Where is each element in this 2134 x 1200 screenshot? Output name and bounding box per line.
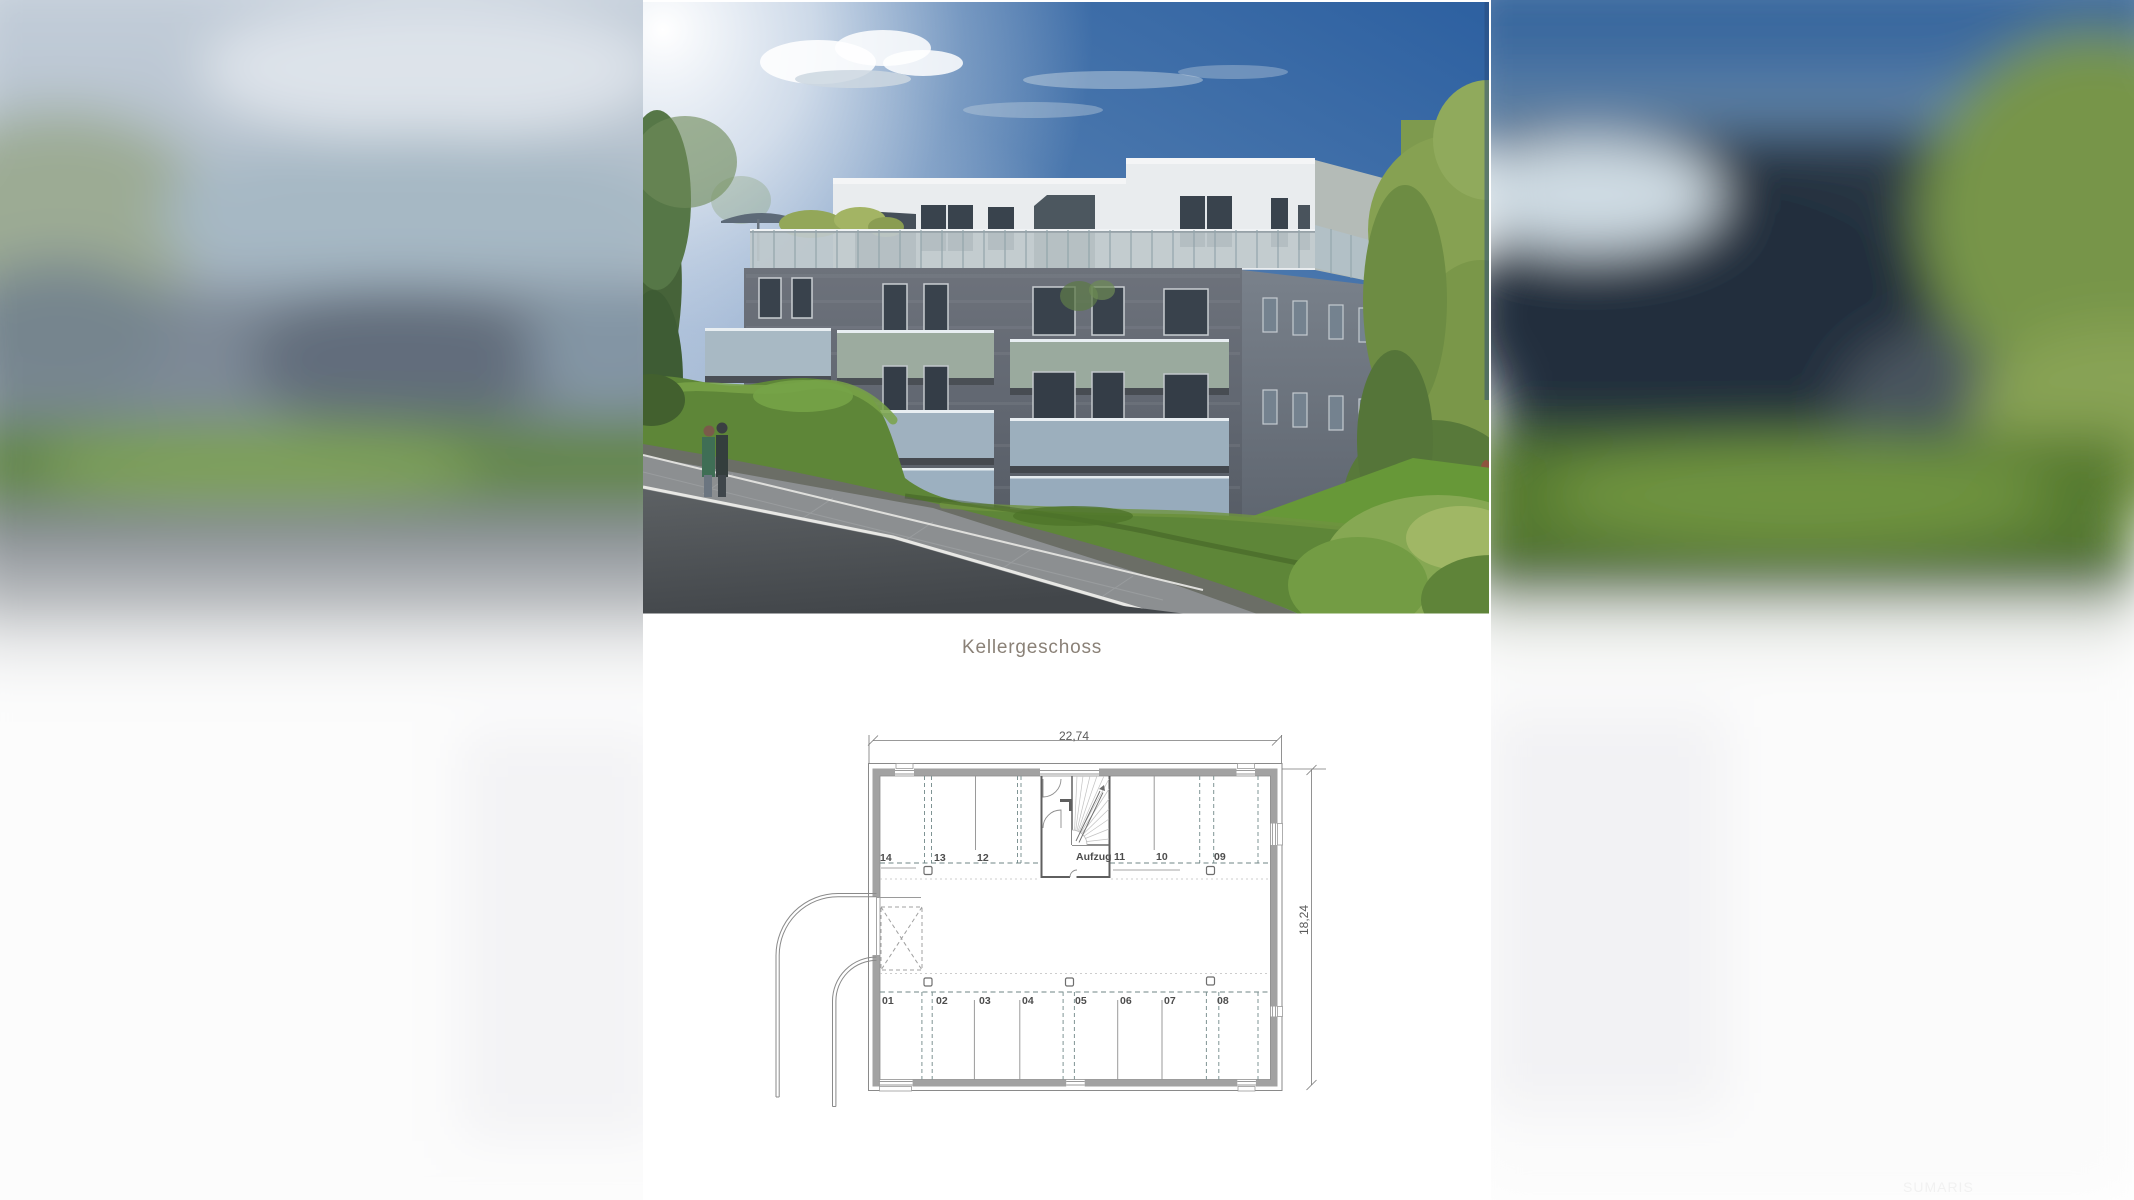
- svg-text:13: 13: [934, 852, 946, 864]
- svg-text:14: 14: [880, 852, 892, 864]
- svg-text:22,74: 22,74: [1059, 729, 1089, 743]
- svg-text:05: 05: [1075, 995, 1087, 1007]
- svg-text:06: 06: [1120, 995, 1132, 1007]
- svg-text:11: 11: [1114, 851, 1125, 863]
- svg-text:09: 09: [1214, 851, 1226, 863]
- svg-text:Aufzug: Aufzug: [1076, 851, 1112, 863]
- svg-text:08: 08: [1217, 995, 1229, 1007]
- svg-text:03: 03: [979, 995, 991, 1007]
- svg-text:10: 10: [1156, 851, 1168, 863]
- svg-text:02: 02: [936, 995, 948, 1007]
- svg-text:18,24: 18,24: [1297, 905, 1311, 935]
- svg-text:01: 01: [882, 995, 894, 1007]
- svg-text:07: 07: [1164, 995, 1176, 1007]
- svg-text:12: 12: [977, 852, 989, 864]
- svg-text:04: 04: [1022, 995, 1034, 1007]
